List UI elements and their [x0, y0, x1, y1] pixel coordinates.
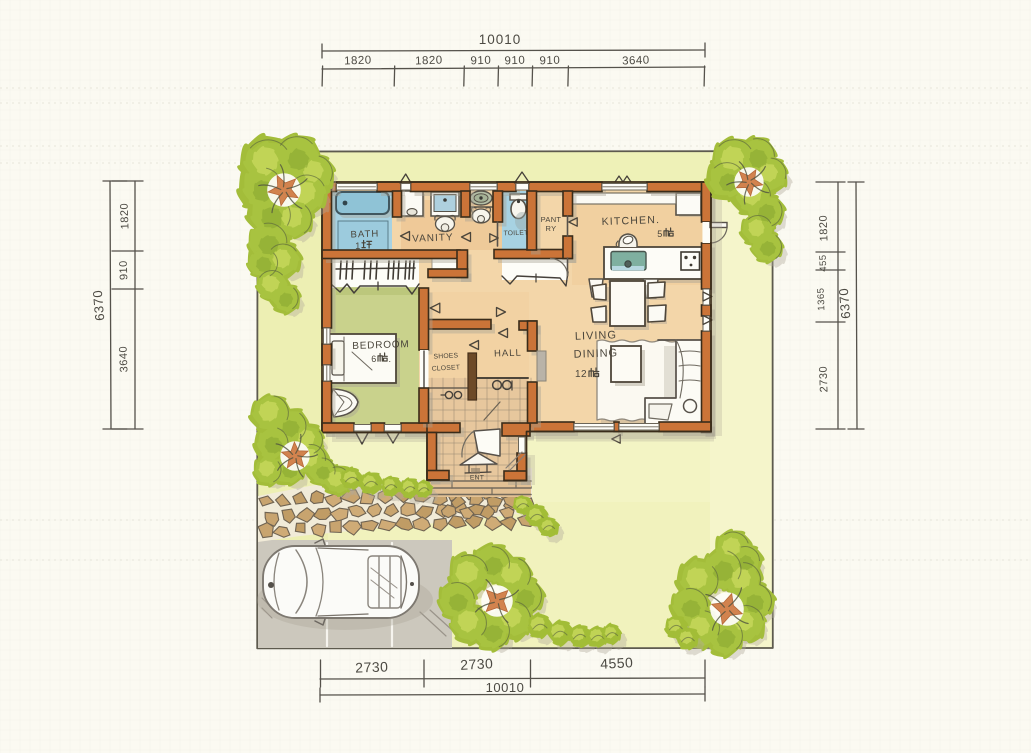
svg-text:1365: 1365: [816, 287, 828, 311]
svg-text:DINING: DINING: [573, 347, 618, 361]
svg-text:2730: 2730: [355, 658, 389, 675]
svg-text:455: 455: [818, 254, 830, 272]
svg-text:5: 5: [657, 229, 663, 239]
svg-text:BATH: BATH: [350, 229, 379, 241]
svg-text:1820: 1820: [415, 55, 443, 68]
svg-text:910: 910: [504, 55, 525, 68]
svg-text:TOILET: TOILET: [503, 230, 528, 238]
svg-text:10010: 10010: [486, 680, 525, 695]
svg-text:910: 910: [118, 260, 131, 280]
svg-text:3640: 3640: [622, 55, 650, 68]
svg-text:.: .: [388, 354, 391, 364]
svg-text:1: 1: [355, 241, 361, 251]
svg-text:4550: 4550: [600, 654, 634, 672]
svg-text:2730: 2730: [818, 366, 831, 393]
svg-text:VANITY: VANITY: [412, 232, 454, 244]
svg-text:2730: 2730: [460, 655, 494, 673]
svg-text:KITCHEN.: KITCHEN.: [601, 214, 660, 228]
svg-text:910: 910: [539, 55, 560, 68]
svg-text:LIVING: LIVING: [575, 329, 617, 342]
svg-text:1820: 1820: [344, 55, 372, 68]
svg-text:RY: RY: [546, 224, 557, 233]
svg-text:ENT: ENT: [470, 475, 484, 482]
svg-text:HALL: HALL: [494, 348, 522, 360]
svg-text:12: 12: [575, 369, 587, 380]
svg-text:CLOSET: CLOSET: [432, 364, 461, 372]
svg-text:6: 6: [371, 354, 377, 364]
svg-text:3640: 3640: [118, 346, 131, 373]
svg-text:10010: 10010: [479, 32, 522, 47]
svg-text:6370: 6370: [836, 287, 854, 319]
svg-text:PANT: PANT: [541, 215, 562, 224]
svg-text:910: 910: [470, 55, 491, 68]
svg-text:BEDROOM: BEDROOM: [352, 339, 410, 352]
svg-text:1820: 1820: [119, 203, 132, 230]
svg-text:1820: 1820: [818, 215, 831, 242]
svg-text:SHOES: SHOES: [433, 352, 458, 360]
svg-text:6370: 6370: [90, 289, 108, 321]
